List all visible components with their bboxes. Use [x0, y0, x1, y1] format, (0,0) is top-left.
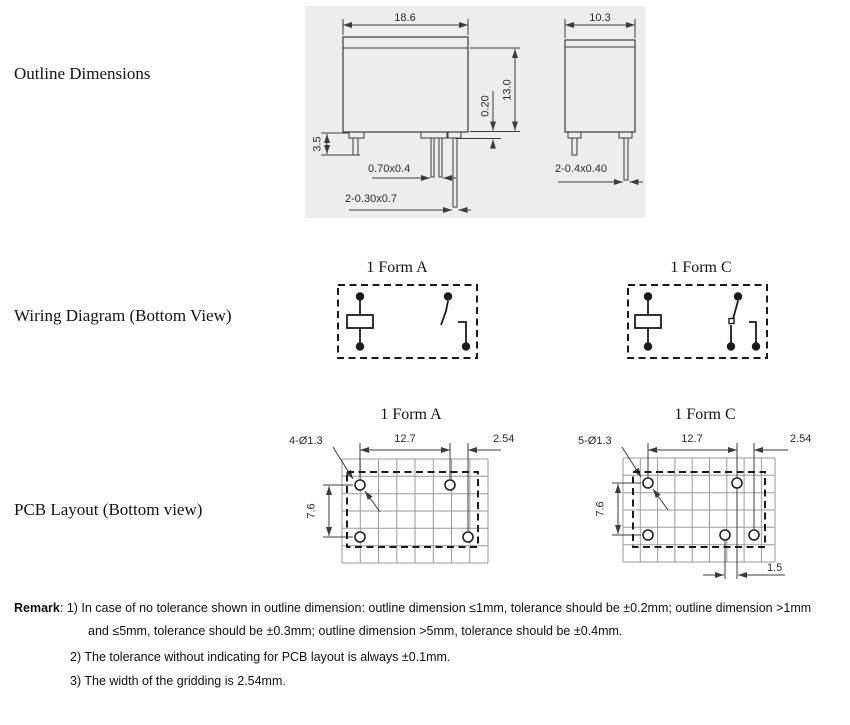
dim-holes: 4-Ø1.3: [289, 435, 323, 447]
dim-row-gap: 7.6: [306, 503, 318, 518]
wiring-form-c-title: 1 Form C: [670, 259, 731, 276]
remark-label: Remark: [14, 601, 60, 615]
dim-side-pin: 2-0.4x0.40: [555, 163, 607, 175]
dim-standoff: 0.20: [480, 95, 492, 116]
dim-offset: 2.54: [790, 433, 811, 445]
pcb-dimensions: 12.7 2.54 4-Ø1.3 7.6: [289, 433, 514, 537]
relay-side-view: [565, 40, 635, 180]
changeover-contact-symbol: [727, 292, 760, 350]
wiring-section-label: Wiring Diagram (Bottom View): [14, 306, 232, 326]
remark-line-3: 2) The tolerance without indicating for …: [70, 650, 450, 664]
wiring-diagram-form-c: 1 Form C: [615, 255, 785, 370]
pcb-layout-form-c: 1 Form C 12.7 2.54 5-Ø1.3 7.6 1.5: [570, 400, 830, 600]
dim-holes: 5-Ø1.3: [578, 435, 612, 447]
dim-pitch: 12.7: [394, 433, 415, 445]
pcb-form-c-title: 1 Form C: [674, 406, 735, 423]
remark-line-1: Remark: 1) In case of no tolerance shown…: [14, 601, 811, 615]
dim-nc-offset: 1.5: [767, 562, 782, 574]
dim-side-width: 10.3: [589, 12, 610, 24]
pcb-dimensions: 12.7 2.54 5-Ø1.3 7.6 1.5: [578, 433, 811, 579]
side-view-dimensions: 10.3 2-0.4x0.40: [555, 12, 643, 182]
dim-front-height: 13.0: [502, 79, 514, 100]
coil-symbol: [347, 292, 373, 350]
dim-contact-pin: 2-0.30x0.7: [345, 193, 397, 205]
dim-offset: 2.54: [493, 433, 514, 445]
dim-pitch: 12.7: [681, 433, 702, 445]
pcb-section-label: PCB Layout (Bottom view): [14, 500, 202, 520]
pcb-holes: [643, 478, 759, 540]
dim-coil-pin: 0.70x0.4: [368, 163, 410, 175]
dim-pin-length: 3.5: [312, 136, 324, 151]
no-contact-symbol: [441, 292, 470, 350]
remark-line-4: 3) The width of the gridding is 2.54mm.: [70, 674, 286, 688]
relay-front-view: [343, 37, 468, 207]
pcb-form-a-title: 1 Form A: [380, 406, 442, 423]
wiring-diagram-form-a: 1 Form A: [325, 255, 495, 370]
pcb-layout-form-a: 1 Form A 12.7 2.54 4-Ø1.3 7.6: [283, 400, 523, 590]
coil-symbol: [635, 292, 661, 350]
wiring-form-a-title: 1 Form A: [366, 259, 428, 276]
pcb-outline: [347, 472, 478, 547]
outline-section-label: Outline Dimensions: [14, 64, 150, 84]
outline-dimensions-drawing: 18.6 3.5 0.20 13.0 0.70x0.4 2-0.30x0.7: [305, 6, 645, 218]
remark-line-2: and ≤5mm, tolerance should be ±0.3mm; ou…: [88, 624, 622, 638]
dim-front-width: 18.6: [394, 12, 415, 24]
dim-row-gap: 7.6: [595, 501, 607, 516]
